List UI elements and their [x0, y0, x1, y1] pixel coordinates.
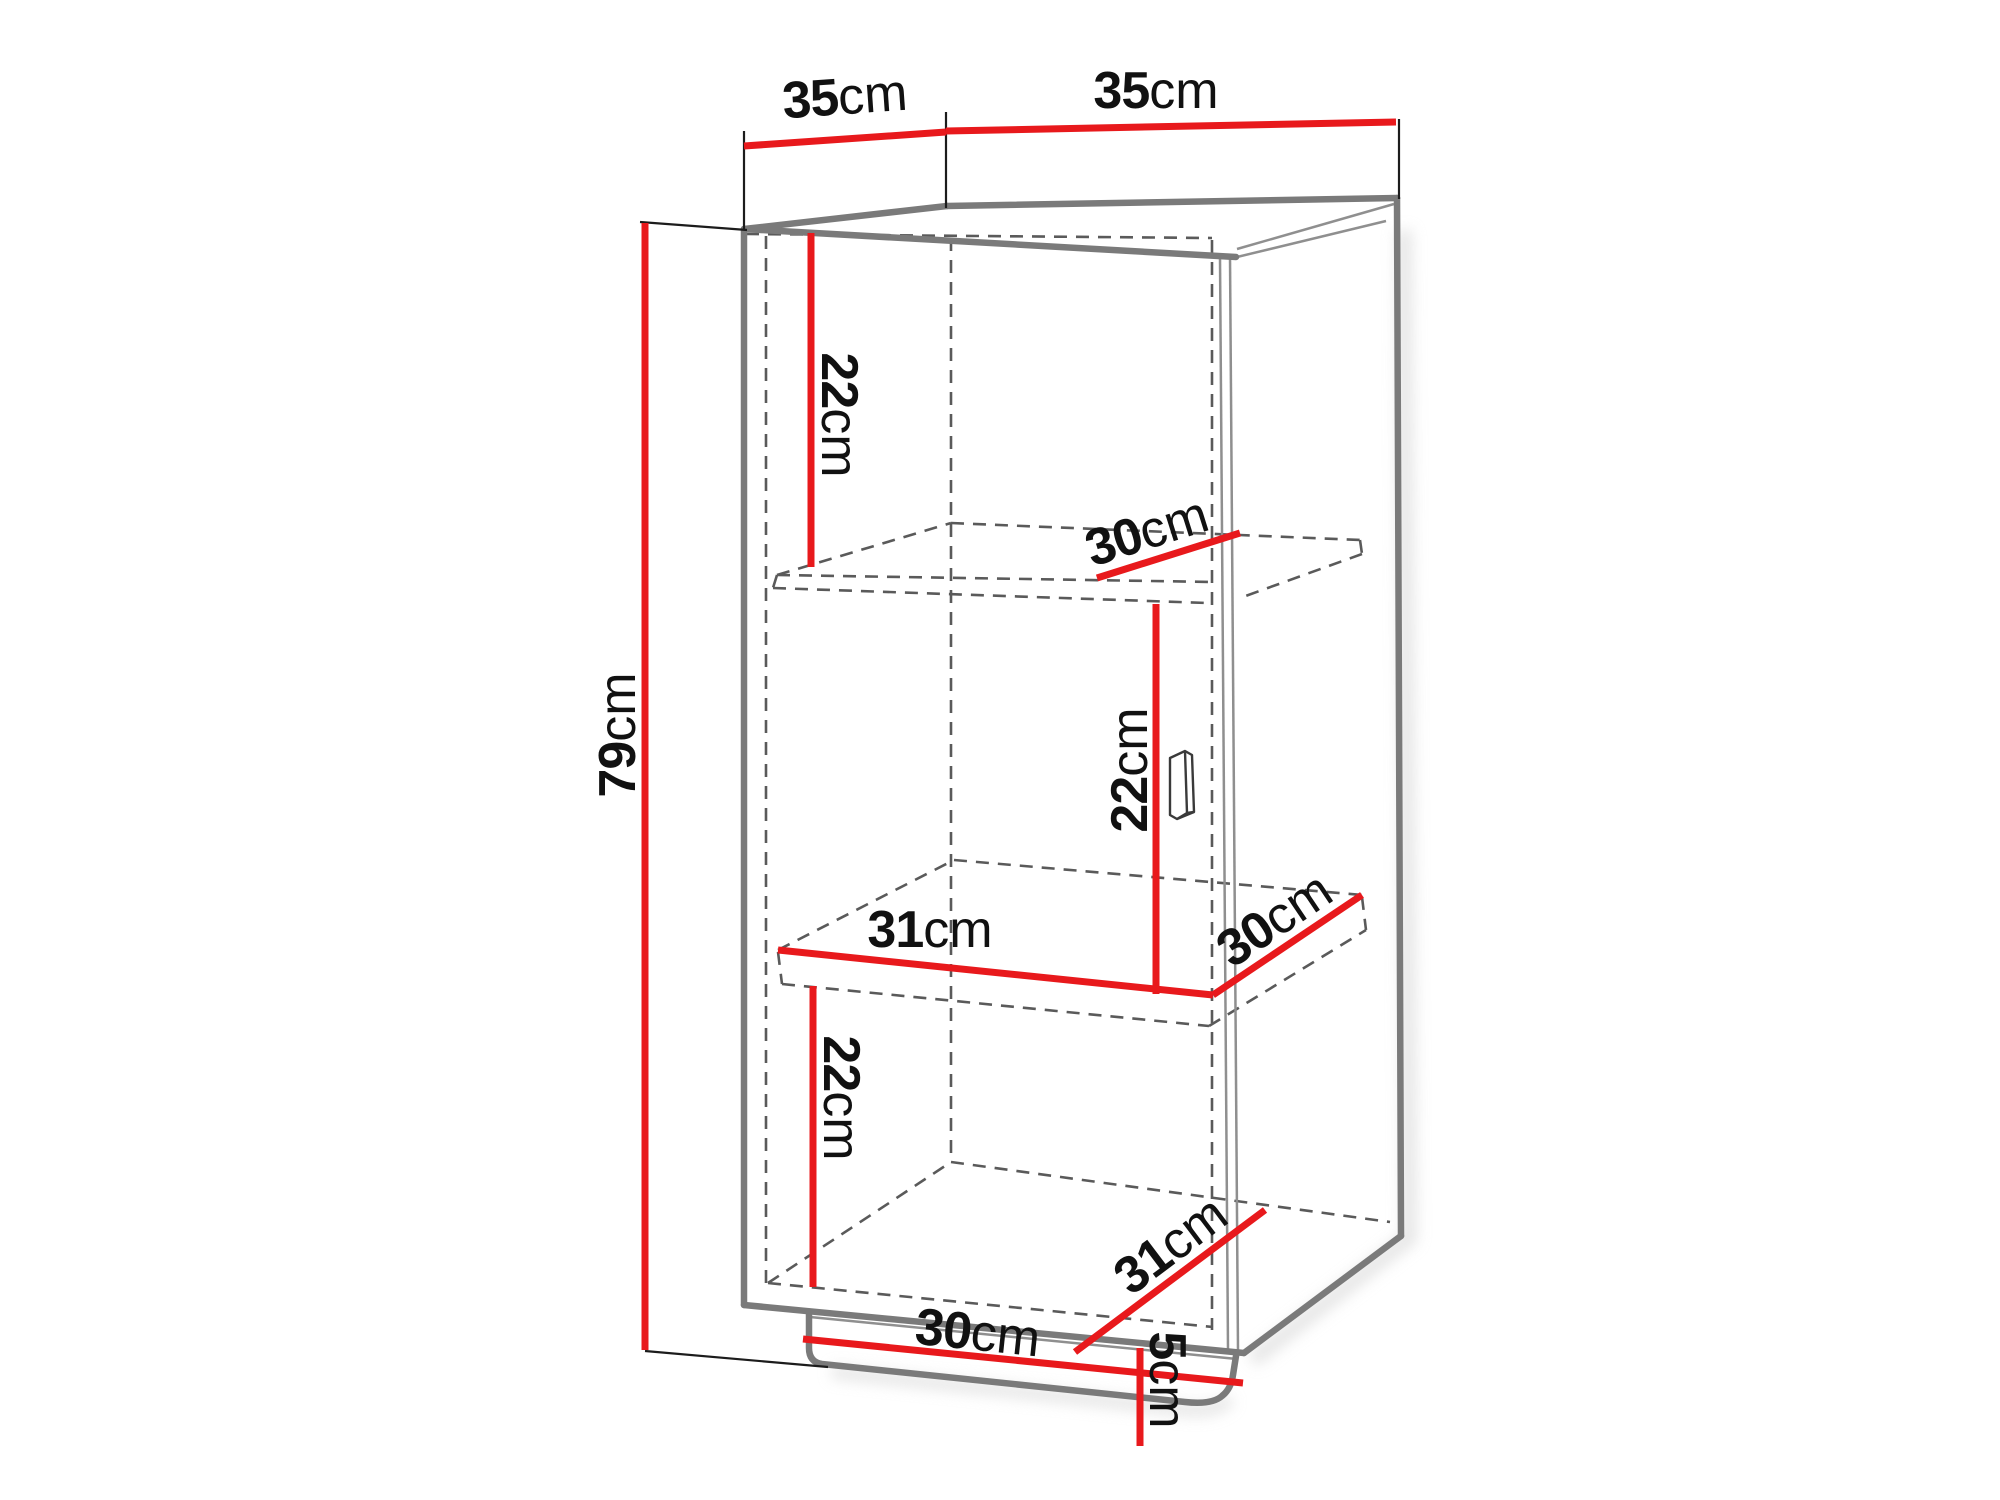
dimension-diagram: 35cm 35cm 79cm 22cm 30cm 22cm 31cm 30cm …	[0, 0, 2000, 1500]
door-handle	[1170, 751, 1194, 819]
background	[0, 0, 2000, 1500]
right-back-edge	[1397, 198, 1401, 1236]
label-middle-shelf-width: 31cm	[867, 901, 992, 959]
label-middle-compartment: 22cm	[1101, 707, 1159, 832]
label-plinth-height: 5cm	[1138, 1331, 1196, 1428]
label-height: 79cm	[589, 672, 647, 797]
label-upper-compartment: 22cm	[810, 352, 868, 477]
label-top-width: 35cm	[1093, 62, 1218, 120]
label-top-depth: 35cm	[780, 64, 909, 131]
label-lower-compartment: 22cm	[812, 1035, 870, 1160]
